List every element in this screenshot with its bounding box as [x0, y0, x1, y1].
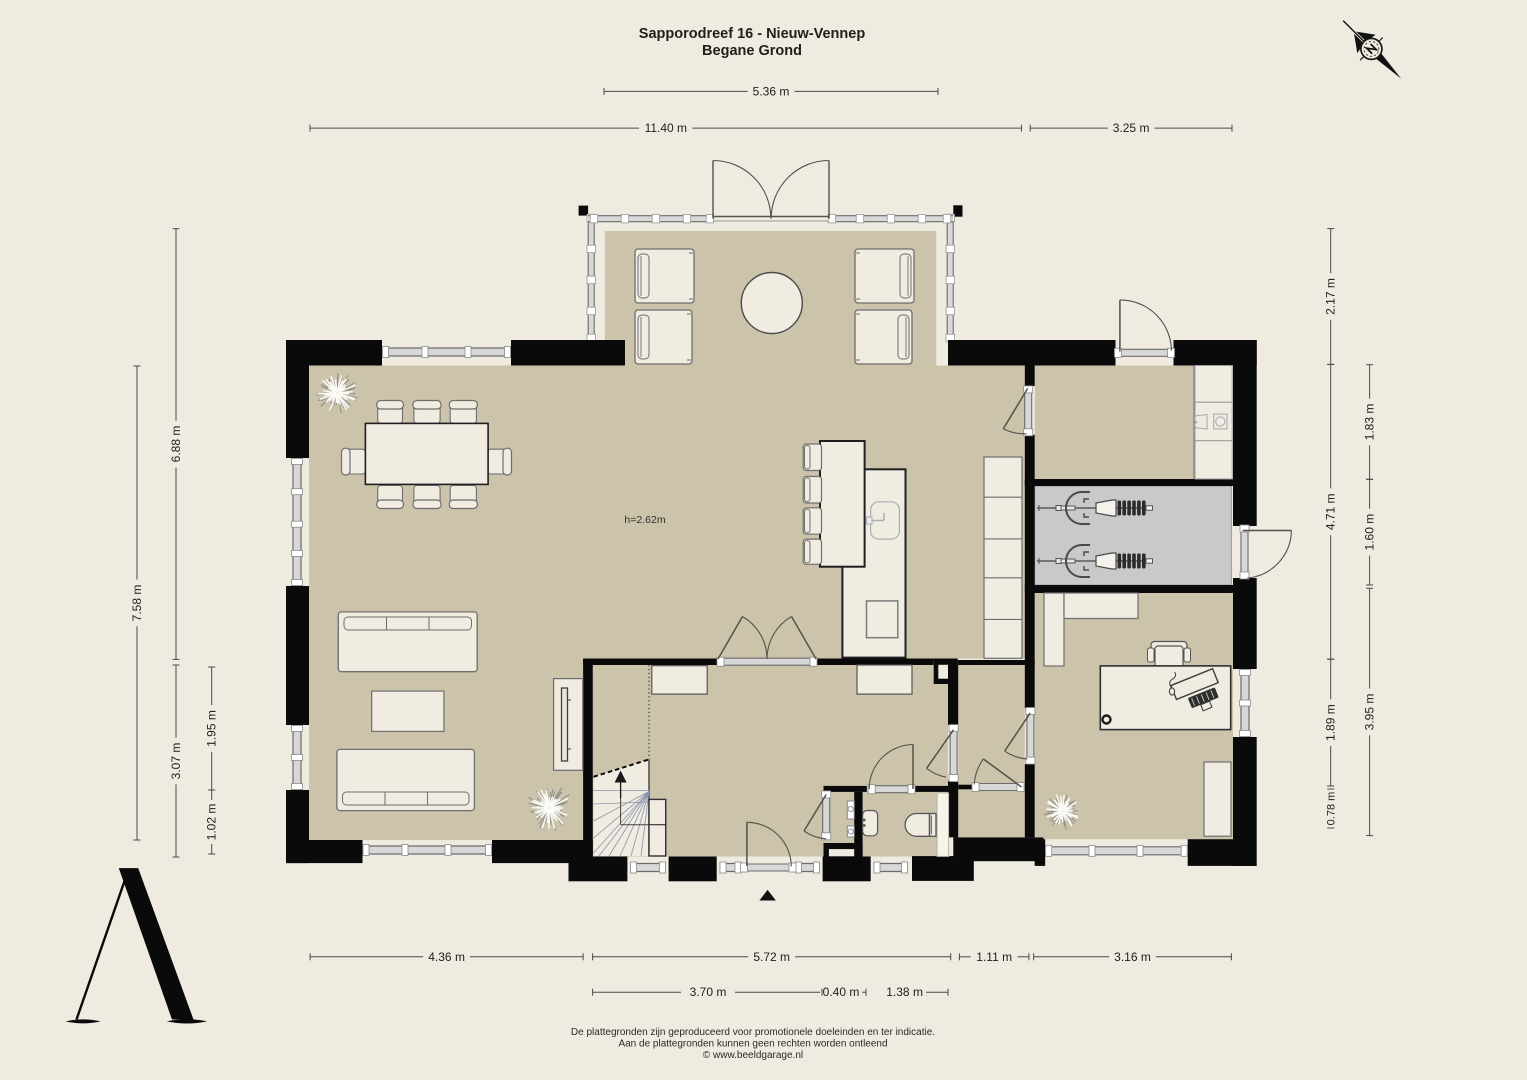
svg-text:4.36 m: 4.36 m: [428, 950, 465, 964]
svg-text:1.60 m: 1.60 m: [1363, 514, 1377, 551]
svg-text:1.38 m: 1.38 m: [886, 985, 923, 999]
svg-text:3.16 m: 3.16 m: [1114, 950, 1151, 964]
svg-text:0.78 m: 0.78 m: [1326, 792, 1338, 826]
svg-text:© www.beeldgarage.nl: © www.beeldgarage.nl: [703, 1050, 803, 1061]
svg-text:11.40 m: 11.40 m: [645, 121, 687, 135]
svg-text:1.95 m: 1.95 m: [205, 710, 219, 747]
svg-text:3.07 m: 3.07 m: [169, 743, 183, 780]
svg-text:3.95 m: 3.95 m: [1363, 694, 1377, 731]
svg-text:1.89 m: 1.89 m: [1324, 704, 1338, 741]
svg-text:2.17 m: 2.17 m: [1324, 278, 1338, 315]
svg-text:3.70 m: 3.70 m: [690, 985, 727, 999]
svg-text:0.40 m: 0.40 m: [823, 985, 860, 999]
svg-text:Sapporodreef 16 - Nieuw-Vennep: Sapporodreef 16 - Nieuw-Vennep: [639, 26, 866, 42]
svg-text:h=2.62m: h=2.62m: [624, 514, 665, 526]
svg-text:5.36 m: 5.36 m: [753, 84, 790, 98]
svg-text:Aan de plattegronden kunnen ge: Aan de plattegronden kunnen geen rechten…: [618, 1039, 887, 1050]
svg-text:5.72 m: 5.72 m: [753, 950, 790, 964]
svg-text:6.88 m: 6.88 m: [169, 426, 183, 463]
svg-text:Begane Grond: Begane Grond: [702, 43, 802, 59]
svg-text:1.02 m: 1.02 m: [205, 804, 219, 841]
svg-text:De plattegronden zijn geproduc: De plattegronden zijn geproduceerd voor …: [571, 1027, 935, 1038]
svg-text:3.25 m: 3.25 m: [1113, 121, 1150, 135]
svg-text:7.58 m: 7.58 m: [130, 585, 144, 622]
svg-text:4.71 m: 4.71 m: [1324, 493, 1338, 530]
svg-text:1.11 m: 1.11 m: [976, 950, 1012, 964]
svg-text:1.83 m: 1.83 m: [1363, 404, 1377, 441]
